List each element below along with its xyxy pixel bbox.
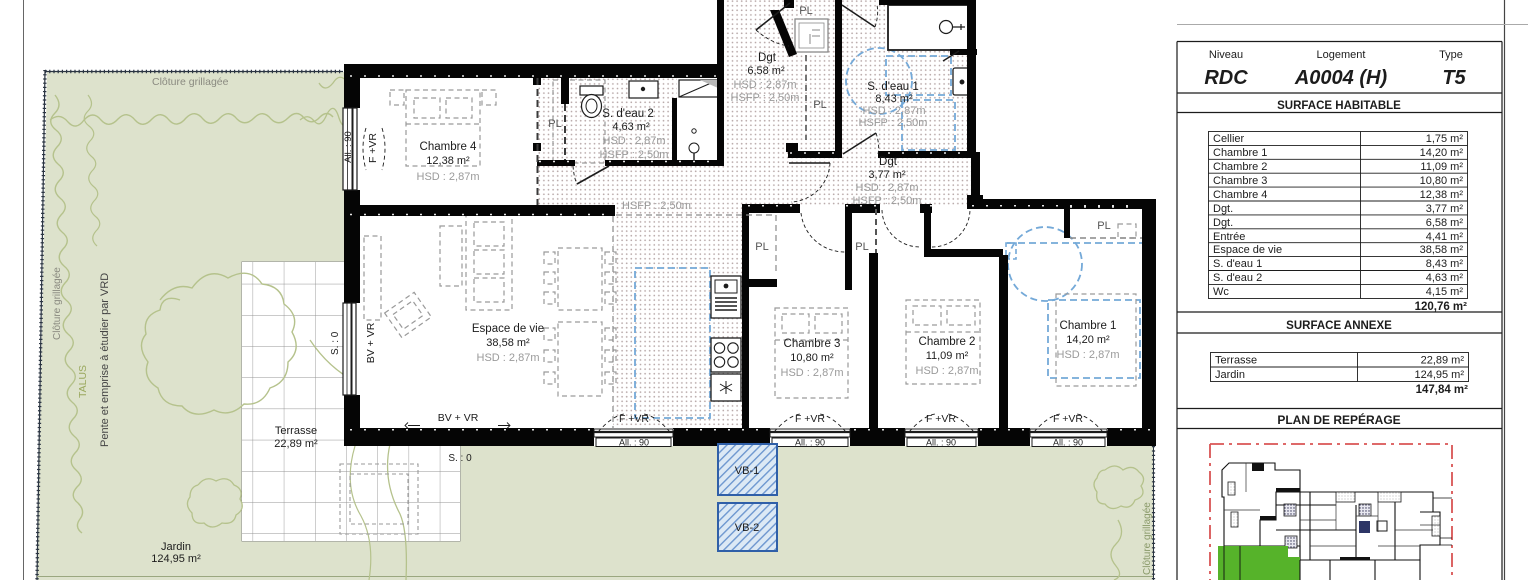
svg-text:Chambre 2: Chambre 2 xyxy=(1213,161,1267,173)
svg-text:10,80 m²: 10,80 m² xyxy=(790,352,834,364)
svg-text:PL: PL xyxy=(755,241,768,253)
svg-text:22,89 m²: 22,89 m² xyxy=(1421,355,1465,367)
svg-text:HSD : 2,87m: HSD : 2,87m xyxy=(417,171,480,183)
svg-text:Chambre 2: Chambre 2 xyxy=(919,336,976,348)
svg-text:F +VR: F +VR xyxy=(619,413,649,425)
svg-text:PL: PL xyxy=(1097,220,1110,232)
svg-text:VB-1: VB-1 xyxy=(735,465,759,477)
svg-text:HSFP : 2,50m: HSFP : 2,50m xyxy=(600,149,669,161)
svg-text:Entrée: Entrée xyxy=(1213,231,1245,243)
svg-text:Cellier: Cellier xyxy=(1213,133,1245,145)
svg-text:4,63 m²: 4,63 m² xyxy=(1426,272,1464,284)
svg-text:HSD : 2,87m: HSD : 2,87m xyxy=(477,352,540,364)
svg-text:S. d'eau 2: S. d'eau 2 xyxy=(1213,272,1262,284)
svg-text:A0004 (H): A0004 (H) xyxy=(1294,67,1388,89)
svg-text:12,38 m²: 12,38 m² xyxy=(426,155,470,167)
svg-text:10,80 m²: 10,80 m² xyxy=(1420,175,1464,187)
svg-text:12,38 m²: 12,38 m² xyxy=(1420,189,1464,201)
svg-text:147,84 m²: 147,84 m² xyxy=(1416,384,1469,396)
svg-text:22,89 m²: 22,89 m² xyxy=(274,438,318,450)
svg-text:Wc: Wc xyxy=(1213,286,1229,298)
svg-text:HSD : 2,87m: HSD : 2,87m xyxy=(603,135,666,147)
svg-text:TALUS: TALUS xyxy=(77,365,89,398)
svg-text:HSFP : 2,50m: HSFP : 2,50m xyxy=(859,117,928,129)
svg-text:Clôture grillagée: Clôture grillagée xyxy=(52,267,63,340)
svg-text:HSFP : 2,50m: HSFP : 2,50m xyxy=(853,195,922,207)
svg-text:HSD : 2,87m: HSD : 2,87m xyxy=(1057,349,1120,361)
svg-text:120,76 m²: 120,76 m² xyxy=(1415,301,1468,313)
svg-text:PL: PL xyxy=(855,241,868,253)
svg-text:Chambre 1: Chambre 1 xyxy=(1060,320,1117,332)
svg-text:Logement: Logement xyxy=(1317,49,1366,61)
svg-text:F +VR: F +VR xyxy=(795,413,825,425)
svg-text:Chambre 1: Chambre 1 xyxy=(1213,147,1267,159)
svg-text:VB-2: VB-2 xyxy=(735,522,759,534)
svg-text:HSD : 2,87m: HSD : 2,87m xyxy=(863,105,926,117)
svg-text:14,20 m²: 14,20 m² xyxy=(1420,147,1464,159)
svg-text:Terrasse: Terrasse xyxy=(1215,355,1257,367)
svg-text:14,20 m²: 14,20 m² xyxy=(1066,334,1110,346)
svg-text:Terrasse: Terrasse xyxy=(275,425,317,437)
svg-text:Dgt.: Dgt. xyxy=(1213,217,1233,229)
svg-text:38,58 m²: 38,58 m² xyxy=(1420,244,1464,256)
svg-text:6,58 m²: 6,58 m² xyxy=(1426,217,1464,229)
svg-text:HSD : 2,87m: HSD : 2,87m xyxy=(856,182,919,194)
svg-text:S. d'eau 1: S. d'eau 1 xyxy=(867,81,918,93)
svg-text:4,41 m²: 4,41 m² xyxy=(1426,231,1464,243)
svg-text:1,75 m²: 1,75 m² xyxy=(1426,133,1464,145)
svg-text:SURFACE HABITABLE: SURFACE HABITABLE xyxy=(1277,100,1401,112)
svg-text:Dgt: Dgt xyxy=(879,156,898,168)
svg-text:HSD : 2,87m: HSD : 2,87m xyxy=(734,79,797,91)
svg-text:6,58 m²: 6,58 m² xyxy=(747,65,785,77)
svg-text:BV + VR: BV + VR xyxy=(365,322,377,363)
svg-text:Clôture grillagée: Clôture grillagée xyxy=(152,76,229,88)
svg-text:8,43 m²: 8,43 m² xyxy=(875,93,913,105)
svg-text:Espace de vie: Espace de vie xyxy=(472,323,544,335)
svg-text:S. : 0: S. : 0 xyxy=(448,453,472,464)
svg-text:4,15 m²: 4,15 m² xyxy=(1426,286,1464,298)
svg-text:F +VR: F +VR xyxy=(367,133,379,163)
svg-text:Clôture grillagée: Clôture grillagée xyxy=(1142,502,1153,575)
svg-text:Chambre 4: Chambre 4 xyxy=(1213,189,1267,201)
svg-text:3,77 m²: 3,77 m² xyxy=(868,169,906,181)
svg-text:HSFP : 2,50m: HSFP : 2,50m xyxy=(731,92,800,104)
svg-text:Pente et emprise à étudier par: Pente et emprise à étudier par VRD xyxy=(99,273,111,447)
svg-text:Chambre 3: Chambre 3 xyxy=(1213,175,1267,187)
svg-text:Niveau: Niveau xyxy=(1209,49,1243,61)
svg-text:T5: T5 xyxy=(1442,67,1466,89)
svg-text:Type: Type xyxy=(1439,49,1463,61)
svg-text:11,09 m²: 11,09 m² xyxy=(926,350,969,362)
svg-text:124,95 m²: 124,95 m² xyxy=(151,553,201,565)
svg-text:PL: PL xyxy=(799,5,812,17)
svg-text:HSD : 2,87m: HSD : 2,87m xyxy=(781,367,844,379)
svg-text:Dgt.: Dgt. xyxy=(1213,203,1233,215)
svg-text:Espace de vie: Espace de vie xyxy=(1213,244,1282,256)
svg-text:SURFACE ANNEXE: SURFACE ANNEXE xyxy=(1286,320,1392,332)
svg-text:HSFP : 2,50m: HSFP : 2,50m xyxy=(622,200,691,212)
svg-text:All. : 90: All. : 90 xyxy=(619,438,649,448)
svg-text:All. : 90: All. : 90 xyxy=(1053,438,1083,448)
svg-text:All. : 90: All. : 90 xyxy=(343,131,354,163)
svg-text:S. d'eau 1: S. d'eau 1 xyxy=(1213,258,1262,270)
svg-text:Dgt: Dgt xyxy=(758,52,777,64)
svg-text:38,58 m²: 38,58 m² xyxy=(486,337,530,349)
svg-text:All. : 90: All. : 90 xyxy=(926,438,956,448)
svg-text:4,63 m²: 4,63 m² xyxy=(612,121,650,133)
svg-text:Jardin: Jardin xyxy=(1215,369,1245,381)
svg-text:RDC: RDC xyxy=(1204,67,1248,89)
svg-text:11,09 m²: 11,09 m² xyxy=(1420,161,1463,173)
svg-text:BV + VR: BV + VR xyxy=(438,412,479,424)
svg-text:8,43 m²: 8,43 m² xyxy=(1426,258,1464,270)
svg-text:Jardin: Jardin xyxy=(161,541,191,553)
svg-text:PL: PL xyxy=(548,118,561,130)
svg-text:S. d'eau 2: S. d'eau 2 xyxy=(602,108,653,120)
svg-text:3,77 m²: 3,77 m² xyxy=(1426,203,1464,215)
svg-text:All. : 90: All. : 90 xyxy=(795,438,825,448)
svg-text:PLAN DE REPÉRAGE: PLAN DE REPÉRAGE xyxy=(1277,412,1400,427)
svg-text:PL: PL xyxy=(813,99,826,111)
svg-text:S. : 0: S. : 0 xyxy=(330,331,341,355)
svg-text:Chambre 3: Chambre 3 xyxy=(784,338,841,350)
svg-text:124,95 m²: 124,95 m² xyxy=(1414,369,1464,381)
svg-text:HSD : 2,87m: HSD : 2,87m xyxy=(916,365,979,377)
svg-text:Chambre 4: Chambre 4 xyxy=(420,141,477,153)
